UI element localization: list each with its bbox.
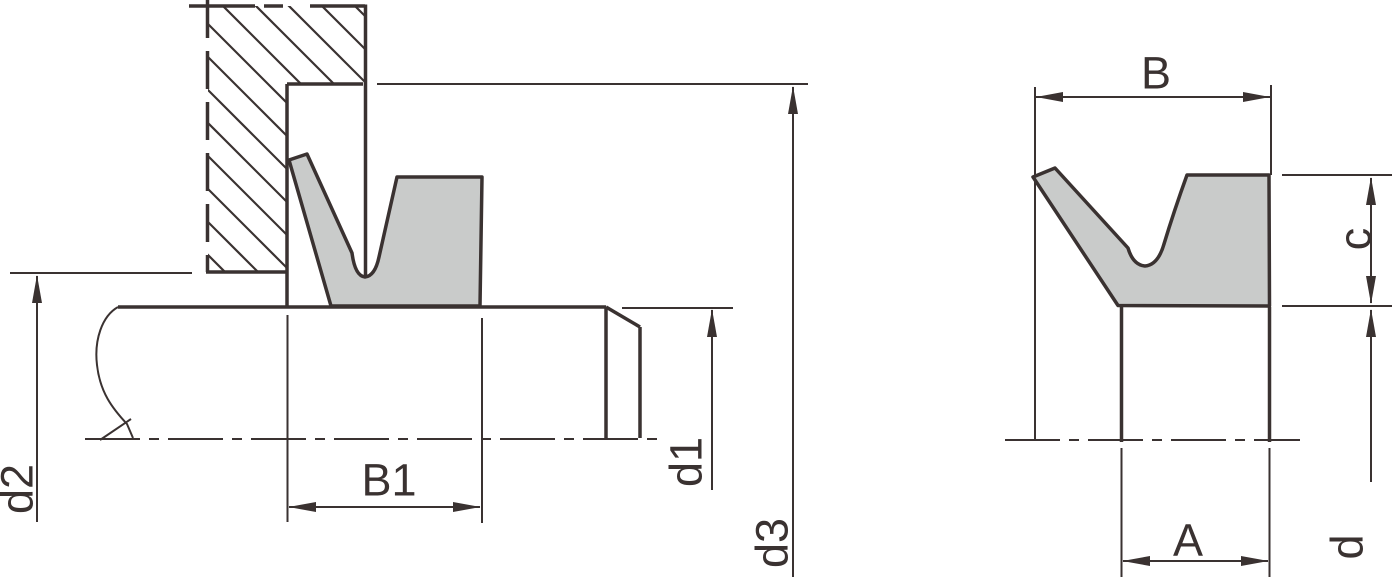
shaft-section [1122,307,1270,442]
dim-label-d2: d2 [0,464,40,514]
dim-d [1366,309,1376,482]
dim-c-arrow-down [1366,276,1376,304]
dim-label-b1: B1 [361,458,416,503]
shaft [118,307,640,438]
dim-label-b: B [1141,51,1171,96]
seal-profile-free [1033,168,1270,306]
dim-c-arrow-up [1366,177,1376,205]
shaft-break-curve [96,307,133,438]
dim-a-arrow-right [1241,556,1269,566]
dim-a-arrow-left [1123,556,1151,566]
dim-label-d3: d3 [750,518,795,568]
seal-technical-drawing: d2 B1 d1 d3 B c A d [0,0,1392,577]
dim-d3 [377,84,808,577]
dim-label-d: d [1325,534,1370,559]
shaft-break-flag [100,419,131,440]
dim-d3-arrow-up [788,86,798,114]
dim-label-a: A [1173,518,1203,563]
dim-b1-arrow-right [453,502,481,512]
shaft-chamfer [606,307,640,327]
free-state-view [1005,85,1392,577]
seal-profile-installed [289,154,482,306]
dim-label-d1: d1 [664,437,709,487]
dim-label-c: c [1333,228,1378,251]
dim-d1-arrow-up [707,309,717,337]
dim-d2-arrow-up [32,275,42,303]
drawing-canvas [0,0,1392,577]
dim-b-arrow-right [1243,92,1270,102]
dim-b-arrow-left [1036,92,1063,102]
dim-d-arrow-up [1366,309,1376,337]
dim-b1-arrow-left [289,502,317,512]
